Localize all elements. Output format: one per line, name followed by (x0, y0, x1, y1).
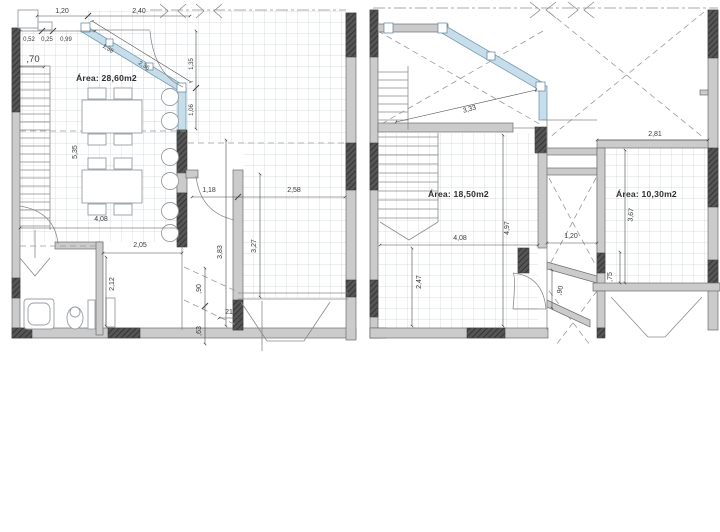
mullion (487, 52, 495, 60)
dim-label: 3,67 (627, 208, 635, 222)
dim-label: 3,83 (217, 245, 224, 259)
bottom-window-segment (108, 328, 140, 338)
glazed-vertical-wall (178, 88, 186, 130)
balcony-wall (597, 291, 605, 328)
bathroom-wall-vertical (96, 242, 103, 335)
left-wall-hatched-segment (370, 143, 378, 190)
bottom-exterior-wall (12, 328, 356, 338)
room-b-bottom-wall (593, 283, 720, 291)
dim-label: 1,06 (189, 104, 195, 116)
left-wall-hatched-segment (12, 28, 20, 112)
door-pillar-hatched (518, 248, 529, 273)
round-chair (162, 113, 179, 130)
room-a-top-wall (378, 123, 513, 132)
bottom-wall (370, 328, 548, 338)
chair (114, 204, 132, 215)
dim-label: ,90 (196, 284, 203, 294)
partition-hatched (177, 130, 187, 173)
mullion (384, 23, 393, 33)
room-b-wall-hatched (597, 253, 605, 273)
dim-label: 1,18 (202, 187, 216, 194)
dining-table (82, 100, 142, 133)
mullion (536, 82, 545, 91)
pillar-hatched (535, 127, 547, 153)
mullion (81, 23, 90, 32)
dining-table (82, 170, 142, 203)
dim-label: 1,35 (189, 58, 195, 70)
room-b-floor-grid (605, 148, 708, 283)
dim-label: 4,97 (504, 221, 511, 235)
stair-treads (20, 66, 50, 226)
sink-basin (28, 303, 50, 325)
closet-box (18, 10, 38, 28)
right-wall-hatched-segment (708, 10, 718, 58)
dim-label: ,70 (26, 54, 39, 65)
round-chair (162, 173, 179, 190)
room-a-right-wall (538, 153, 547, 248)
dim-label: ,75 (607, 272, 614, 282)
dim-label: 2,58 (287, 187, 301, 194)
round-chair (162, 203, 179, 220)
chair (114, 134, 132, 145)
dim-label: 5,35 (72, 145, 79, 159)
dim-label: 2,40 (132, 8, 146, 15)
dim-label: 3,27 (251, 239, 258, 253)
chair (88, 134, 106, 145)
round-chair (162, 225, 179, 242)
dim-label: 0,52 (23, 37, 35, 43)
toilet-seat (70, 307, 80, 317)
dim-label: 2,81 (648, 131, 662, 138)
chair (88, 204, 106, 215)
dim-label: 2,05 (133, 242, 147, 249)
wall-notch (700, 90, 708, 95)
bathroom-fixture (88, 300, 95, 329)
chair (114, 88, 132, 99)
right-wall-hatched-segment (708, 148, 718, 207)
area-label: Área: 28,60m2 (76, 73, 137, 83)
left-wall-hatched-segment (12, 278, 20, 298)
left-wall-hatched-segment (370, 10, 378, 57)
round-chair (162, 89, 179, 106)
right-wall-hatched-segment (346, 280, 356, 297)
dim-label: 2,47 (416, 275, 423, 289)
dim-label: ,63 (196, 326, 203, 336)
dim-label: 1,20 (564, 233, 578, 240)
round-chair (162, 149, 179, 166)
corridor-cabinet (106, 298, 115, 327)
area-label: Área: 10,30m2 (616, 189, 677, 199)
bottom-window-segment (467, 328, 505, 338)
bottom-corner-segment (12, 328, 32, 338)
dim-label: 2,12 (109, 277, 116, 291)
floor-plan-sheet: Área: 28,60m2 1,20 2,40 0,52 0,25 0,99 ,… (0, 0, 720, 532)
chair (114, 158, 132, 169)
dim-label: 4,08 (94, 216, 108, 223)
dim-label: 0,25 (41, 37, 53, 43)
entry-partition-hatched (233, 300, 243, 330)
entry-floor-grid (243, 143, 346, 298)
dim-label: 0,99 (60, 37, 72, 43)
right-wall-hatched-segment (346, 143, 356, 190)
room-b-top-wall (597, 140, 708, 148)
partition-hatched (177, 193, 187, 247)
closet-shelf (38, 22, 52, 30)
right-wall-hatched-segment (346, 13, 356, 57)
chair (88, 88, 106, 99)
area-label: Área: 18,50m2 (428, 189, 489, 199)
dim-label: 21 (225, 309, 233, 316)
mullion (438, 23, 447, 33)
chair (88, 158, 106, 169)
left-wall-hatched-segment (370, 280, 378, 317)
dim-label: 4,08 (453, 235, 467, 242)
floor-plan-drawing: Área: 28,60m2 1,20 2,40 0,52 0,25 0,99 ,… (0, 0, 720, 532)
dim-label: 1,20 (55, 8, 69, 15)
balcony-wall-hatched (597, 328, 605, 338)
